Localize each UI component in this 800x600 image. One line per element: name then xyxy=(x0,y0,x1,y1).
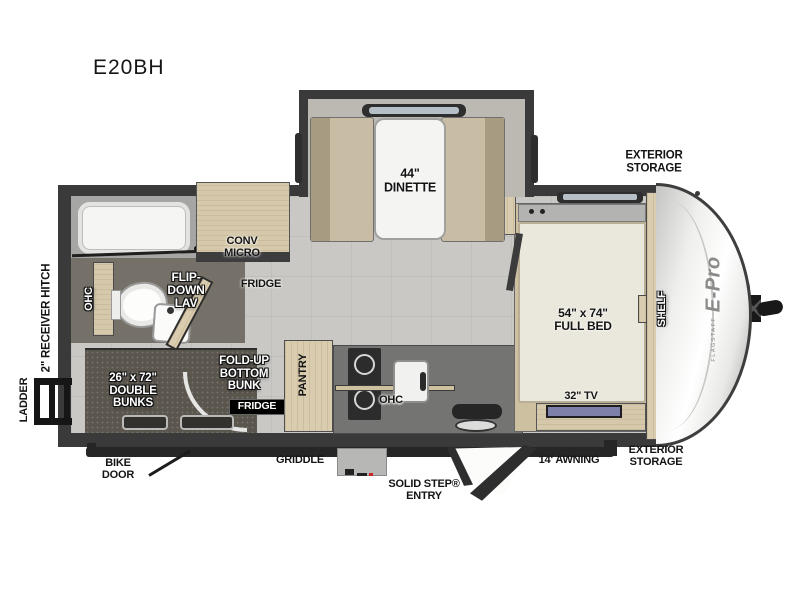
page-title: E20BH xyxy=(93,56,165,80)
label-ladder: LADDER xyxy=(18,378,30,423)
label-flip-down-lav: FLIP- DOWN LAV xyxy=(167,271,204,311)
label-receiver-hitch: 2" RECEIVER HITCH xyxy=(41,264,54,373)
label-fold-up-bunk: FOLD-UP BOTTOM BUNK xyxy=(219,355,269,393)
bed-headboard-shelf xyxy=(518,204,646,222)
slide-window-glass xyxy=(369,107,459,114)
epro-logo: FLAGSTAFF E-Pro xyxy=(703,256,726,361)
logo-epro-text: E-Pro xyxy=(703,256,725,312)
fridge-badge: FRIDGE xyxy=(229,399,285,415)
label-exterior-storage-top: EXTERIOR STORAGE xyxy=(625,149,682,174)
ladder-icon xyxy=(34,378,72,425)
bunk-tray xyxy=(180,415,234,430)
dinette-bench-right xyxy=(441,117,505,242)
label-full-bed: 54" x 74" FULL BED xyxy=(554,307,612,333)
griddle-box xyxy=(337,448,387,476)
stove-burner-icon xyxy=(354,354,375,375)
tv-icon xyxy=(546,405,622,418)
label-fridge-upper: FRIDGE xyxy=(241,278,281,290)
stove-burner-icon xyxy=(354,389,375,410)
floorplan-canvas: E20BH xyxy=(0,0,800,600)
label-griddle: GRIDDLE xyxy=(276,454,324,466)
label-bike-door: BIKE DOOR xyxy=(102,457,134,481)
griddle-knob xyxy=(357,473,367,476)
griddle-indicator-light xyxy=(369,473,373,476)
bed-window-glass xyxy=(563,194,637,200)
toilet-tank xyxy=(111,290,121,320)
slide-side-window-icon xyxy=(531,135,538,183)
awning-bracket xyxy=(604,440,617,456)
entry-bowl-icon xyxy=(455,419,497,432)
kitchen-faucet-icon xyxy=(420,372,426,391)
bench-backrest xyxy=(311,118,330,241)
flip-counter xyxy=(452,404,502,419)
bench-backrest xyxy=(485,118,504,241)
label-exterior-storage-bottom: EXTERIOR STORAGE xyxy=(629,444,684,468)
label-double-bunks: 26" x 72" DOUBLE BUNKS xyxy=(109,372,156,410)
label-ohc-bath: OHC xyxy=(83,287,95,311)
label-dinette: 44" DINETTE xyxy=(384,167,436,195)
nose-marker-light xyxy=(695,191,700,196)
label-shelf: SHELF xyxy=(656,291,668,326)
label-pantry: PANTRY xyxy=(297,354,309,397)
label-solid-step: SOLID STEP® ENTRY xyxy=(388,478,459,502)
label-fridge-badge: FRIDGE xyxy=(238,401,276,413)
shower-pan xyxy=(78,202,190,254)
label-tv: 32" TV xyxy=(564,390,597,402)
bunk-tray xyxy=(122,415,168,430)
headboard-knob xyxy=(540,209,545,214)
awning-bracket xyxy=(87,443,96,450)
griddle-knob xyxy=(345,469,354,475)
logo-flagstaff-text: FLAGSTAFF xyxy=(711,317,717,362)
label-conv-micro: CONV MICRO xyxy=(224,235,260,259)
headboard-knob xyxy=(529,209,534,214)
label-ohc-kitchen: OHC xyxy=(379,394,403,406)
dinette-bench-left xyxy=(310,117,374,242)
label-awning: 14' AWNING xyxy=(539,454,600,466)
slide-side-window-icon xyxy=(295,133,302,183)
shelf-tab xyxy=(638,295,647,323)
